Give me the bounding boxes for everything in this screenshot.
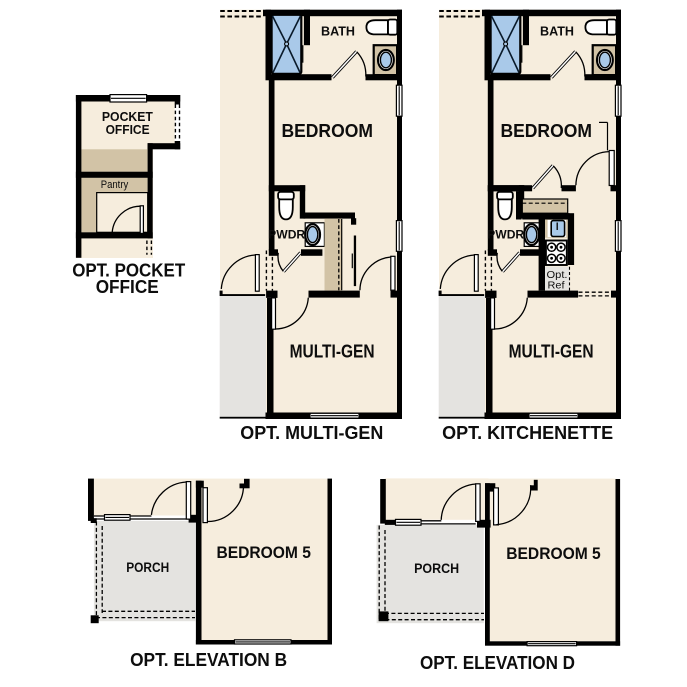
svg-text:OFFICE: OFFICE	[106, 123, 150, 137]
svg-text:BATH: BATH	[321, 25, 355, 39]
svg-text:BEDROOM: BEDROOM	[500, 121, 592, 141]
svg-text:BEDROOM: BEDROOM	[281, 121, 373, 141]
svg-text:POCKET: POCKET	[102, 110, 153, 124]
svg-text:BEDROOM 5: BEDROOM 5	[506, 544, 601, 563]
svg-text:BEDROOM 5: BEDROOM 5	[216, 543, 311, 562]
svg-text:BATH: BATH	[540, 25, 574, 39]
svg-text:OPT. ELEVATION B: OPT. ELEVATION B	[130, 650, 287, 670]
svg-text:OPT. ELEVATION D: OPT. ELEVATION D	[420, 653, 575, 673]
svg-text:OPT. KITCHENETTE: OPT. KITCHENETTE	[442, 423, 613, 443]
svg-text:PWDR: PWDR	[487, 228, 524, 242]
svg-text:Pantry: Pantry	[101, 179, 129, 191]
svg-text:PORCH: PORCH	[414, 561, 459, 576]
svg-text:PWDR: PWDR	[268, 228, 305, 242]
svg-text:PORCH: PORCH	[126, 560, 169, 575]
svg-text:Ref: Ref	[548, 280, 565, 292]
svg-text:OPT. MULTI-GEN: OPT. MULTI-GEN	[240, 423, 383, 443]
svg-text:MULTI-GEN: MULTI-GEN	[290, 341, 375, 361]
svg-text:MULTI-GEN: MULTI-GEN	[509, 341, 594, 361]
svg-text:OFFICE: OFFICE	[96, 277, 159, 297]
